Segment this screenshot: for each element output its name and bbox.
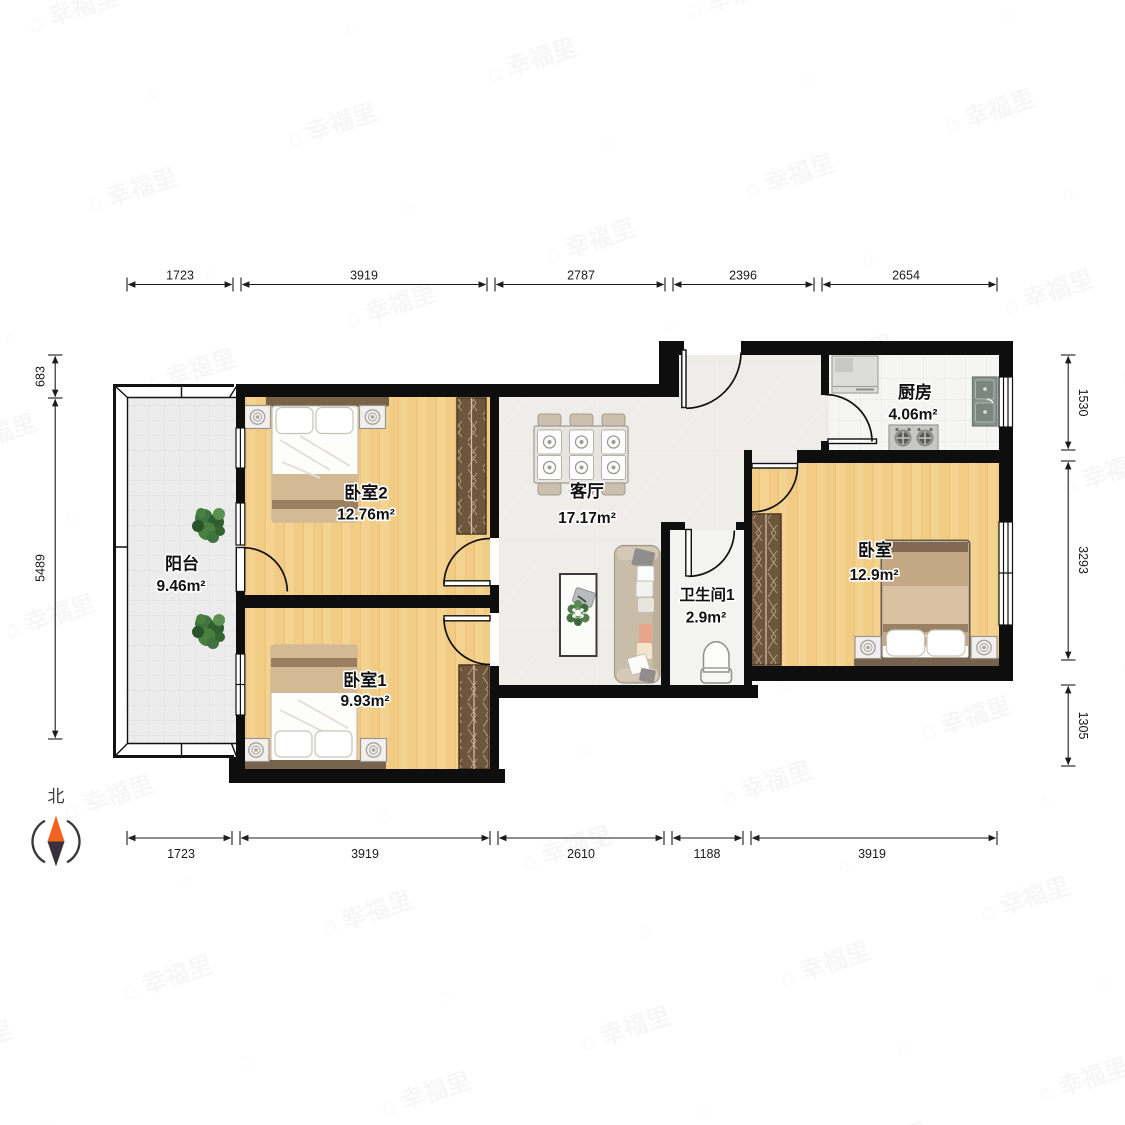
svg-text:北: 北 <box>48 787 65 806</box>
svg-text:17.17m²: 17.17m² <box>558 510 616 527</box>
svg-text:1188: 1188 <box>694 847 721 861</box>
svg-text:1530: 1530 <box>1076 389 1090 417</box>
svg-text:2787: 2787 <box>567 269 595 283</box>
svg-text:卧室1: 卧室1 <box>343 670 386 690</box>
svg-text:厨房: 厨房 <box>898 382 932 402</box>
svg-text:卧室: 卧室 <box>858 540 892 560</box>
svg-text:2610: 2610 <box>567 847 595 861</box>
svg-text:9.93m²: 9.93m² <box>340 693 389 710</box>
svg-text:683: 683 <box>34 366 48 387</box>
svg-text:12.76m²: 12.76m² <box>337 507 395 524</box>
svg-text:1723: 1723 <box>167 847 195 861</box>
svg-text:5489: 5489 <box>34 554 48 582</box>
svg-text:2396: 2396 <box>729 269 757 283</box>
svg-text:3919: 3919 <box>858 847 886 861</box>
svg-text:1723: 1723 <box>166 269 194 283</box>
svg-text:4.06m²: 4.06m² <box>888 407 937 424</box>
svg-text:阳台: 阳台 <box>165 554 199 574</box>
svg-text:3293: 3293 <box>1076 546 1090 574</box>
svg-text:12.9m²: 12.9m² <box>849 567 898 584</box>
svg-text:客厅: 客厅 <box>569 481 604 501</box>
svg-text:卧室2: 卧室2 <box>344 483 387 503</box>
svg-text:9.46m²: 9.46m² <box>156 578 205 595</box>
svg-text:2.9m²: 2.9m² <box>686 610 727 627</box>
svg-text:2654: 2654 <box>892 269 920 283</box>
svg-text:3919: 3919 <box>350 269 378 283</box>
svg-text:卫生间1: 卫生间1 <box>679 585 735 604</box>
svg-text:3919: 3919 <box>351 847 379 861</box>
svg-text:1305: 1305 <box>1076 712 1090 740</box>
